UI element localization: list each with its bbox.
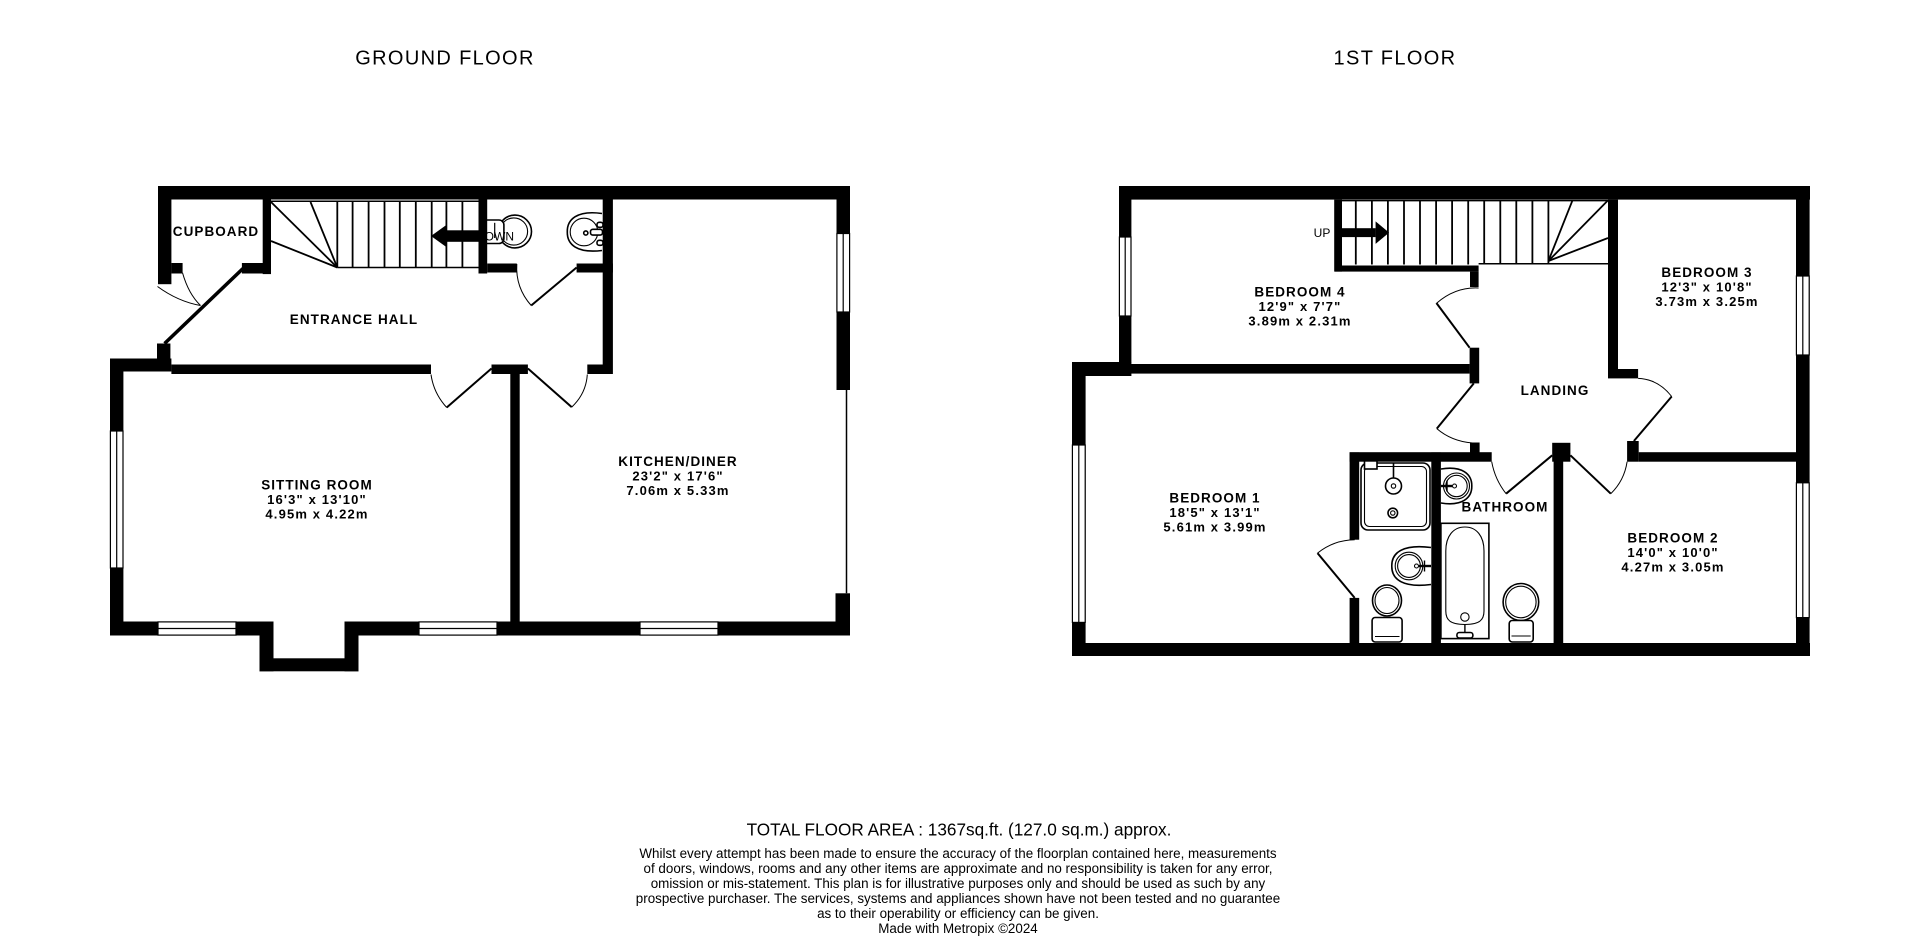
svg-text:12'3" x 10'8": 12'3" x 10'8"	[1661, 280, 1752, 295]
svg-text:as to their operability or eff: as to their operability or efficiency ca…	[817, 906, 1099, 921]
svg-text:7.06m x 5.33m: 7.06m x 5.33m	[626, 483, 729, 498]
svg-text:12'9" x 7'7": 12'9" x 7'7"	[1259, 299, 1342, 314]
svg-text:BEDROOM 1: BEDROOM 1	[1169, 491, 1260, 506]
svg-text:of doors, windows, rooms and a: of doors, windows, rooms and any other i…	[644, 861, 1273, 876]
svg-text:3.89m x 2.31m: 3.89m x 2.31m	[1248, 314, 1351, 329]
svg-text:BEDROOM 3: BEDROOM 3	[1661, 265, 1752, 280]
svg-text:Whilst every attempt has been: Whilst every attempt has been made to en…	[639, 846, 1276, 861]
svg-text:LANDING: LANDING	[1521, 383, 1590, 398]
svg-text:TOTAL FLOOR AREA : 1367sq.ft.: TOTAL FLOOR AREA : 1367sq.ft. (127.0 sq.…	[747, 820, 1172, 840]
svg-text:UP: UP	[1314, 226, 1331, 240]
svg-text:18'5" x 13'1": 18'5" x 13'1"	[1169, 505, 1260, 520]
svg-text:14'0" x 10'0": 14'0" x 10'0"	[1627, 545, 1718, 560]
svg-text:BEDROOM 4: BEDROOM 4	[1254, 285, 1345, 300]
svg-text:CUPBOARD: CUPBOARD	[173, 224, 259, 239]
svg-text:16'3" x 13'10": 16'3" x 13'10"	[267, 492, 367, 507]
svg-text:4.27m x 3.05m: 4.27m x 3.05m	[1621, 560, 1724, 575]
svg-text:GROUND FLOOR: GROUND FLOOR	[355, 47, 535, 69]
svg-text:23'2" x 17'6": 23'2" x 17'6"	[632, 469, 723, 484]
svg-text:Made with Metropix ©2024: Made with Metropix ©2024	[878, 921, 1038, 936]
svg-text:4.95m x 4.22m: 4.95m x 4.22m	[265, 507, 368, 522]
svg-text:5.61m x 3.99m: 5.61m x 3.99m	[1163, 520, 1266, 535]
svg-text:SITTING ROOM: SITTING ROOM	[261, 478, 373, 493]
svg-text:1ST FLOOR: 1ST FLOOR	[1334, 47, 1457, 69]
svg-text:BEDROOM 2: BEDROOM 2	[1627, 531, 1718, 546]
svg-text:3.73m x 3.25m: 3.73m x 3.25m	[1655, 294, 1758, 309]
svg-text:KITCHEN/DINER: KITCHEN/DINER	[618, 454, 737, 469]
svg-text:prospective purchaser. The ser: prospective purchaser. The services, sys…	[636, 891, 1280, 906]
svg-text:omission or mis-statement. Thi: omission or mis-statement. This plan is …	[651, 876, 1266, 891]
svg-text:ENTRANCE HALL: ENTRANCE HALL	[290, 312, 418, 327]
svg-text:BATHROOM: BATHROOM	[1462, 499, 1549, 514]
